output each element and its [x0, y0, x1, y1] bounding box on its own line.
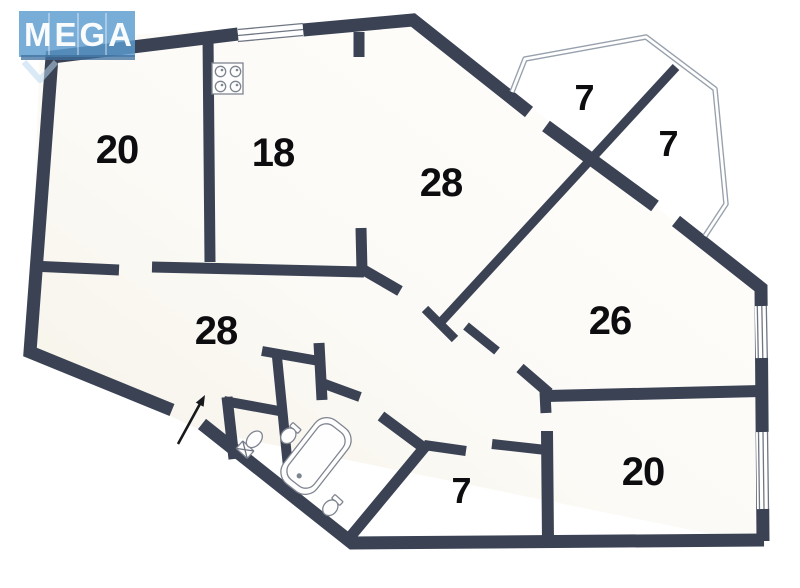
room-label-28-living: 28 — [195, 309, 238, 353]
mega-logo-text: MEGA — [24, 16, 135, 53]
room-label-28-center: 28 — [420, 161, 463, 205]
room-label-26: 26 — [589, 299, 632, 343]
room-label-20-top-left: 20 — [96, 128, 139, 172]
floor-plan-page: 20 18 28 7 7 28 26 7 20 MEGA — [0, 0, 800, 588]
room-label-7-balcony-left: 7 — [574, 77, 593, 118]
stove-icon — [212, 63, 243, 94]
room-label-7-balcony-right: 7 — [658, 123, 677, 164]
window-icon-right-lower — [759, 432, 769, 509]
room-label-20-bottom-right: 20 — [622, 450, 665, 494]
room-label-7-hall: 7 — [451, 470, 470, 511]
room-label-18-kitchen: 18 — [252, 131, 295, 175]
floor-plan-canvas: 20 18 28 7 7 28 26 7 20 MEGA — [0, 0, 800, 588]
window-icon-right-upper — [757, 306, 767, 358]
